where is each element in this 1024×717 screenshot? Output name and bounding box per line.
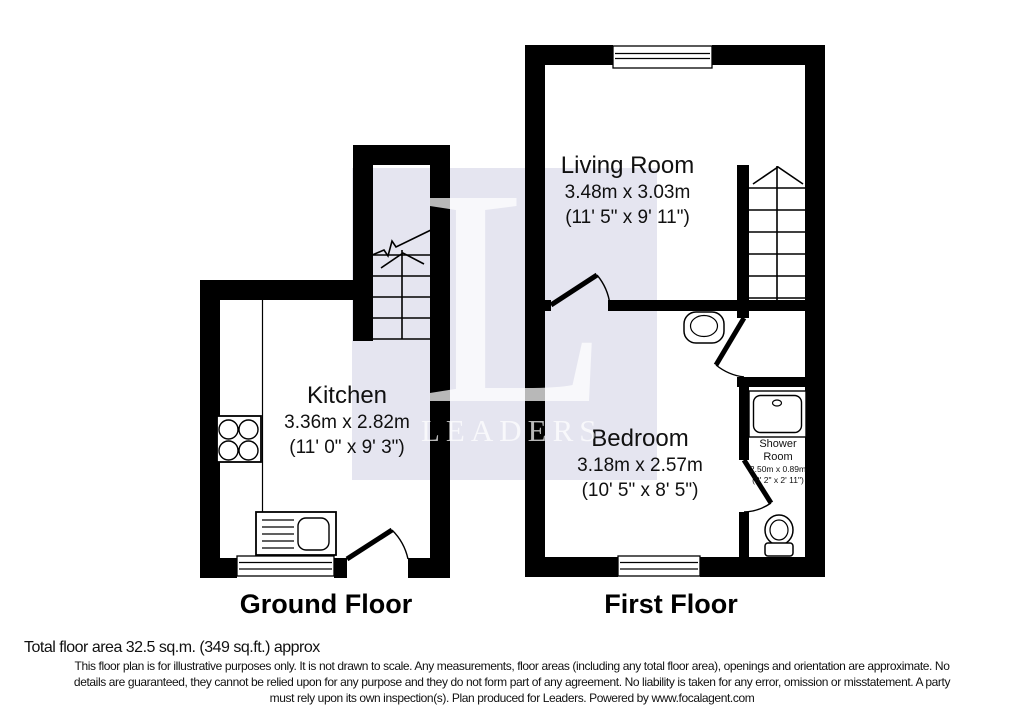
disclaimer-line-1: This floor plan is for illustrative purp… [0,658,1024,674]
ff-bottom-wall-a [525,557,618,577]
gf-bottom-wall-b [334,558,347,578]
ff-bottom-wall-b [700,557,825,577]
shower-room-name-1: Shower [728,438,828,451]
kitchen-window [237,556,334,576]
shower-tray [749,391,806,437]
toilet [765,515,793,556]
bedroom-window [618,556,700,576]
shower-room-label: Shower Room 2.50m x 0.89m (8' 2" x 2' 11… [728,438,828,485]
floor-plan-canvas: Living Room 3.48m x 3.03m (11' 5" x 9' 1… [0,0,1024,717]
gf-bottom-wall-c [408,558,450,578]
disclaimer-text: This floor plan is for illustrative purp… [0,658,1024,706]
gf-bottom-wall-a [200,558,237,578]
ff-door-hinge-stub [737,311,749,318]
wash-basin [684,312,724,343]
ff-shower-left-wall-b [739,512,749,559]
disclaimer-line-2: details are guaranteed, they cannot be r… [0,674,1024,690]
shower-room-metric: 2.50m x 0.89m [728,464,828,475]
shower-room-name-2: Room [728,451,828,464]
ground-floor-title: Ground Floor [176,589,476,620]
bedroom-imperial: (10' 5" x 8' 5") [540,478,740,503]
ff-stair-left-wall [737,165,749,311]
total-floor-area-text: Total floor area 32.5 sq.m. (349 sq.ft.)… [24,639,320,657]
watermark-logo-letter: L [421,143,610,453]
stairs-first-floor [749,166,805,300]
disclaimer-line-3: must rely upon its own inspection(s). Pl… [0,690,1024,706]
kitchen-sink [256,512,336,555]
gf-kitchen-top-wall [200,280,358,300]
kitchen-entrance-door [347,530,408,559]
watermark-brand-text: LEADERS [421,415,603,446]
shower-room-imperial: (8' 2" x 2' 11") [728,475,828,486]
first-floor-title: First Floor [521,589,821,620]
living-room-window [613,46,712,68]
stair-direction-chevron [753,167,803,184]
